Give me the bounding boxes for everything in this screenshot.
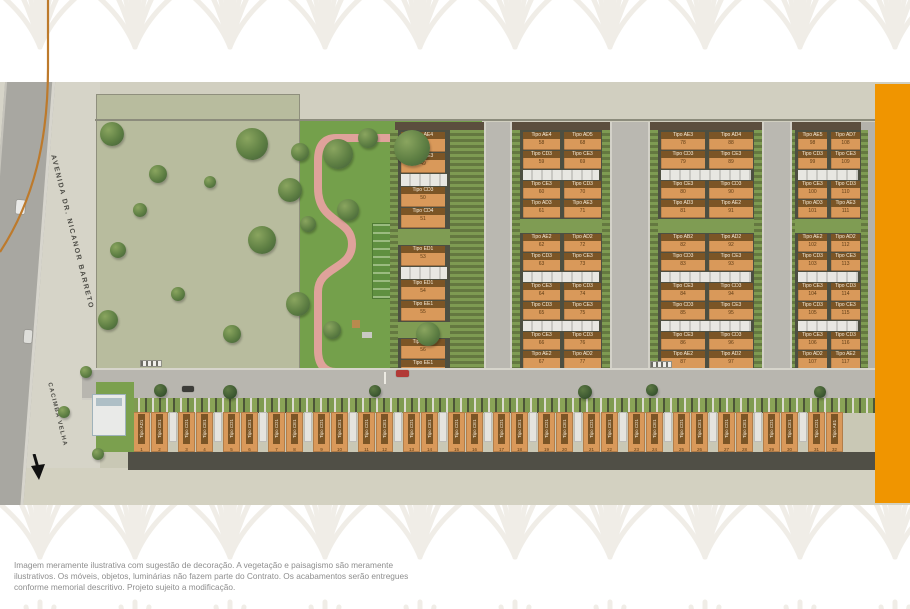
bottom-house: Tipo CD129 [763, 412, 780, 452]
bottom-house-label: Tipo CE1 [516, 414, 523, 444]
unit-lot-number: 69 [564, 158, 601, 167]
bottom-house-number: 7 [268, 447, 285, 452]
house-unit: Tipo CE366 [523, 332, 560, 350]
house-unit: Tipo CE3106 [798, 332, 827, 350]
unit-lot-number: 83 [661, 260, 705, 269]
unit-type-label: Tipo CE3 [798, 283, 827, 290]
unit-type-label: Tipo CD3 [661, 302, 705, 309]
bottom-house-number: 12 [376, 447, 393, 452]
tree [369, 385, 381, 397]
house-unit: Tipo CD374 [564, 283, 601, 301]
bottom-house-number: 22 [601, 447, 618, 452]
unit-lot-number: 101 [798, 207, 827, 216]
bottom-house-number: 8 [286, 447, 303, 452]
bottom-house: Tipo AE132 [826, 412, 843, 452]
garage-band [798, 272, 858, 282]
bottom-house-label: Tipo CD1 [453, 414, 460, 444]
garage-band [401, 267, 447, 279]
house-unit: Tipo CE3104 [798, 283, 827, 301]
unit-lot-number: 103 [798, 260, 827, 269]
unit-type-label: Tipo CE3 [523, 181, 560, 188]
unit-type-label: Tipo CE3 [831, 151, 860, 158]
bottom-house-number: 28 [736, 447, 753, 452]
unit-lot-number: 102 [798, 241, 827, 250]
unit-type-label: Tipo AE3 [564, 200, 601, 207]
driveway-strip [133, 398, 877, 413]
bottom-house-label: Tipo CE1 [336, 414, 343, 444]
tree [337, 199, 359, 221]
house-unit: Tipo CD399 [798, 151, 827, 169]
house-unit: Tipo CD350 [401, 187, 445, 207]
unit-type-label: Tipo CE3 [709, 151, 753, 158]
cross-lawn [398, 229, 450, 245]
tree [646, 384, 658, 396]
bottom-house-label: Tipo CE1 [651, 414, 658, 444]
unit-type-label: Tipo CD3 [709, 283, 753, 290]
unit-type-label: Tipo AB2 [661, 234, 705, 241]
house-unit: Tipo CD3110 [831, 181, 860, 199]
unit-lot-number: 93 [709, 260, 753, 269]
bottom-house-label: Tipo CD1 [678, 414, 685, 444]
unit-lot-number: 54 [401, 287, 445, 296]
cross-lawn [658, 219, 754, 233]
bottom-house: Tipo CD117 [493, 412, 510, 452]
unit-type-label: Tipo CE3 [798, 181, 827, 188]
unit-type-label: Tipo CE3 [831, 302, 860, 309]
unit-lot-number: 62 [523, 241, 560, 250]
unit-lot-number: 111 [831, 207, 860, 216]
bottom-house-number: 20 [556, 447, 573, 452]
unit-lot-number: 94 [709, 290, 753, 299]
tree [394, 130, 430, 166]
house-unit: Tipo AD2112 [831, 234, 860, 252]
bottom-house: Tipo CD123 [628, 412, 645, 452]
bottom-house-number: 19 [538, 447, 555, 452]
lane-marking [384, 372, 386, 384]
unit-type-label: Tipo CD3 [798, 302, 827, 309]
house-unit: Tipo AD7108 [831, 132, 860, 150]
bottom-house-number: 10 [331, 447, 348, 452]
bottom-house: Tipo CD119 [538, 412, 555, 452]
unit-lot-number: 109 [831, 158, 860, 167]
bottom-house-label: Tipo CE1 [696, 414, 703, 444]
cluster-ground: Tipo AE458Tipo AD568Tipo CD359Tipo CE369… [520, 130, 602, 372]
bottom-house-label: Tipo CE1 [561, 414, 568, 444]
vertical-street-1 [484, 122, 512, 370]
garage-band [661, 170, 751, 180]
unit-type-label: Tipo AE2 [523, 234, 560, 241]
unit-type-label: Tipo CD3 [798, 151, 827, 158]
unit-type-label: Tipo AE3 [831, 200, 860, 207]
house-unit: Tipo ED154 [401, 280, 445, 300]
tree [323, 139, 353, 169]
white-car [24, 330, 33, 344]
bottom-house-label: Tipo CE1 [741, 414, 748, 444]
house-unit: Tipo CE393 [709, 253, 753, 271]
bottom-house: Tipo CD127 [718, 412, 735, 452]
unit-type-label: Tipo CD3 [661, 151, 705, 158]
bottom-house-label: Tipo CD1 [768, 414, 775, 444]
house-unit: Tipo AE2117 [831, 351, 860, 369]
unit-type-label: Tipo CE3 [523, 332, 560, 339]
bottom-house-label: Tipo CE1 [156, 414, 163, 444]
unit-lot-number: 71 [564, 207, 601, 216]
bottom-house-number: 4 [196, 447, 213, 452]
house-unit: Tipo AE267 [523, 351, 560, 369]
bottom-house-number: 15 [448, 447, 465, 452]
unit-lot-number: 70 [564, 188, 601, 197]
unit-type-label: Tipo AD3 [661, 200, 705, 207]
tree [578, 385, 592, 399]
unit-type-label: Tipo CD3 [831, 283, 860, 290]
tree [300, 216, 316, 232]
bottom-garage [709, 412, 717, 442]
bottom-house-label: Tipo CE1 [381, 414, 388, 444]
bottom-house: Tipo CE16 [241, 412, 258, 452]
unit-lot-number: 82 [661, 241, 705, 250]
unit-lot-number: 67 [523, 358, 560, 367]
bottom-house-number: 11 [358, 447, 375, 452]
bottom-house-label: Tipo CE1 [471, 414, 478, 444]
unit-type-label: Tipo AD3 [798, 200, 827, 207]
bottom-house: Tipo CD115 [448, 412, 465, 452]
bottom-house-number: 16 [466, 447, 483, 452]
unit-type-label: Tipo CD4 [401, 208, 445, 215]
bottom-house-number: 30 [781, 447, 798, 452]
unit-type-label: Tipo AE2 [798, 234, 827, 241]
tree [154, 384, 167, 397]
bottom-garage [754, 412, 762, 442]
bottom-house-number: 9 [313, 447, 330, 452]
cluster-b: Tipo AE458Tipo AD568Tipo CD359Tipo CE369… [512, 130, 610, 372]
unit-type-label: Tipo CD3 [564, 283, 601, 290]
unit-lot-number: 116 [831, 339, 860, 348]
unit-type-label: Tipo CE3 [564, 302, 601, 309]
unit-lot-number: 78 [661, 139, 705, 148]
cluster-c: Tipo AE378Tipo AD488Tipo CD379Tipo CE389… [650, 130, 762, 372]
bottom-house-label: Tipo CE1 [606, 414, 613, 444]
tree [358, 128, 378, 148]
unit-lot-number: 73 [564, 260, 601, 269]
unit-lot-number: 92 [709, 241, 753, 250]
unit-lot-number: 61 [523, 207, 560, 216]
vertical-street-3 [762, 122, 792, 370]
house-unit: Tipo AD2107 [798, 351, 827, 369]
unit-type-label: Tipo CD3 [798, 253, 827, 260]
bottom-house-number: 29 [763, 447, 780, 452]
unit-lot-number: 59 [523, 158, 560, 167]
house-unit: Tipo AD381 [661, 200, 705, 218]
unit-type-label: Tipo CD3 [831, 181, 860, 188]
house-unit: Tipo AE598 [798, 132, 827, 150]
unit-type-label: Tipo AD2 [798, 351, 827, 358]
unit-lot-number: 76 [564, 339, 601, 348]
bottom-house: Tipo CE128 [736, 412, 753, 452]
bottom-garage [799, 412, 807, 442]
terrain-bottom [0, 468, 910, 505]
bottom-house-number: 26 [691, 447, 708, 452]
house-unit: Tipo CD396 [709, 332, 753, 350]
playground-item [362, 332, 372, 338]
unit-type-label: Tipo CD3 [401, 187, 445, 194]
house-unit: Tipo CD363 [523, 253, 560, 271]
bottom-house-label: Tipo CD1 [228, 414, 235, 444]
unit-type-label: Tipo CE3 [798, 332, 827, 339]
unit-lot-number: 64 [523, 290, 560, 299]
unit-lot-number: 79 [661, 158, 705, 167]
bottom-house-label: Tipo CD1 [723, 414, 730, 444]
tree [223, 385, 237, 399]
bottom-house-number: 1 [133, 447, 150, 452]
house-unit: Tipo AD292 [709, 234, 753, 252]
bottom-house: Tipo CE124 [646, 412, 663, 452]
unit-lot-number: 96 [709, 339, 753, 348]
unit-lot-number: 77 [564, 358, 601, 367]
unit-lot-number: 89 [709, 158, 753, 167]
direction-arrow-icon [28, 454, 50, 486]
unit-type-label: Tipo CE3 [709, 253, 753, 260]
house-unit: Tipo AE262 [523, 234, 560, 252]
house-unit: Tipo CD390 [709, 181, 753, 199]
house-unit: Tipo CD379 [661, 151, 705, 169]
bottom-house-label: Tipo AD1 [138, 414, 145, 444]
red-car [396, 370, 409, 377]
unit-type-label: Tipo CE3 [564, 253, 601, 260]
garage-band [798, 321, 858, 331]
unit-type-label: Tipo CD3 [564, 181, 601, 188]
bottom-house: Tipo CE118 [511, 412, 528, 452]
dark-car [182, 386, 194, 392]
house-unit: Tipo CE3113 [831, 253, 860, 271]
unit-lot-number: 114 [831, 290, 860, 299]
disclaimer-text: Imagem meramente ilustrativa com sugestã… [14, 560, 574, 592]
bottom-house-number: 31 [808, 447, 825, 452]
bottom-house: Tipo CD15 [223, 412, 240, 452]
unit-type-label: Tipo AE3 [661, 132, 705, 139]
unit-lot-number: 99 [798, 158, 827, 167]
unit-type-label: Tipo CE3 [831, 253, 860, 260]
unit-lot-number: 80 [661, 188, 705, 197]
bottom-house: Tipo CD13 [178, 412, 195, 452]
bottom-house-number: 24 [646, 447, 663, 452]
playground-item [352, 320, 360, 328]
unit-lot-number: 86 [661, 339, 705, 348]
unit-type-label: Tipo AE2 [661, 351, 705, 358]
bottom-garage [484, 412, 492, 442]
house-unit: Tipo EE155 [401, 301, 445, 321]
unit-type-label: Tipo AD2 [709, 351, 753, 358]
bottom-house-number: 3 [178, 447, 195, 452]
unit-lot-number: 72 [564, 241, 601, 250]
garage-band [523, 272, 599, 282]
bottom-house-label: Tipo CE1 [786, 414, 793, 444]
bottom-house-label: Tipo CD1 [633, 414, 640, 444]
bottom-house-number: 23 [628, 447, 645, 452]
tree [223, 325, 241, 343]
bottom-house: Tipo CE14 [196, 412, 213, 452]
bottom-house-label: Tipo CD1 [498, 414, 505, 444]
bottom-garage [214, 412, 222, 442]
house-unit: Tipo CE364 [523, 283, 560, 301]
unit-lot-number: 66 [523, 339, 560, 348]
garage-band [523, 170, 599, 180]
entrance-sign [140, 360, 162, 367]
bottom-house-number: 18 [511, 447, 528, 452]
bottom-house: Tipo CE18 [286, 412, 303, 452]
house-unit: Tipo CD3116 [831, 332, 860, 350]
house-unit: Tipo CE3109 [831, 151, 860, 169]
bottom-garage [259, 412, 267, 442]
bottom-house-number: 2 [151, 447, 168, 452]
bottom-garage [394, 412, 402, 442]
bottom-garage [169, 412, 177, 442]
unit-lot-number: 88 [709, 139, 753, 148]
unit-type-label: Tipo AD4 [709, 132, 753, 139]
house-unit: Tipo AD488 [709, 132, 753, 150]
house-unit: Tipo CD359 [523, 151, 560, 169]
house-unit: Tipo CE389 [709, 151, 753, 169]
unit-type-label: Tipo CE3 [564, 151, 601, 158]
cross-lawn [795, 219, 861, 233]
garage-band [661, 321, 751, 331]
entrance-sign [650, 361, 672, 368]
garage-band [661, 272, 751, 282]
tree [92, 448, 104, 460]
bottom-house-label: Tipo CE1 [201, 414, 208, 444]
tree [58, 406, 70, 418]
unit-lot-number: 104 [798, 290, 827, 299]
bottom-house-label: Tipo CE1 [246, 414, 253, 444]
unit-type-label: Tipo CD3 [831, 332, 860, 339]
bottom-house-label: Tipo CD1 [813, 414, 820, 444]
house-unit: Tipo AE3111 [831, 200, 860, 218]
house-unit: Tipo CD383 [661, 253, 705, 271]
unit-lot-number: 108 [831, 139, 860, 148]
unit-lot-number: 110 [831, 188, 860, 197]
unit-lot-number: 51 [401, 215, 445, 224]
bottom-house-number: 32 [826, 447, 843, 452]
unit-type-label: Tipo AE2 [831, 351, 860, 358]
unit-type-label: Tipo AD2 [709, 234, 753, 241]
house-unit: Tipo CE369 [564, 151, 601, 169]
house-unit: Tipo CD451 [401, 208, 445, 228]
house-unit: Tipo CE384 [661, 283, 705, 301]
bottom-house: Tipo CE126 [691, 412, 708, 452]
unit-type-label: Tipo CE3 [523, 283, 560, 290]
bottom-house-label: Tipo CD1 [318, 414, 325, 444]
unit-type-label: Tipo CE3 [661, 332, 705, 339]
bottom-garage [349, 412, 357, 442]
vertical-street-2 [610, 122, 650, 370]
unit-lot-number: 81 [661, 207, 705, 216]
garage-band [798, 170, 858, 180]
unit-lot-number: 55 [401, 308, 445, 317]
house-unit: Tipo CD3114 [831, 283, 860, 301]
bottom-house: Tipo CE110 [331, 412, 348, 452]
house-unit: Tipo AD272 [564, 234, 601, 252]
house-unit: Tipo CE375 [564, 302, 601, 320]
unit-lot-number: 60 [523, 188, 560, 197]
disclaimer-line: conforme memorial descritivo. Projeto su… [14, 582, 574, 593]
bottom-house-label: Tipo CD1 [408, 414, 415, 444]
house-unit: Tipo CD376 [564, 332, 601, 350]
bottom-house-label: Tipo CE1 [426, 414, 433, 444]
house-unit: Tipo AD568 [564, 132, 601, 150]
bottom-house-number: 6 [241, 447, 258, 452]
unit-type-label: Tipo CE3 [661, 181, 705, 188]
bottom-house-label: Tipo CD1 [273, 414, 280, 444]
unit-lot-number: 63 [523, 260, 560, 269]
unit-lot-number: 90 [709, 188, 753, 197]
unit-type-label: Tipo CD3 [709, 181, 753, 188]
bottom-house: Tipo CE120 [556, 412, 573, 452]
bottom-garage [574, 412, 582, 442]
unit-lot-number: 50 [401, 194, 445, 203]
garage-band [401, 174, 447, 186]
bottom-house: Tipo CE122 [601, 412, 618, 452]
unit-type-label: Tipo CD3 [709, 332, 753, 339]
unit-lot-number: 65 [523, 309, 560, 318]
house-unit: Tipo AD3101 [798, 200, 827, 218]
bottom-garage [304, 412, 312, 442]
bottom-house: Tipo CD113 [403, 412, 420, 452]
unit-type-label: Tipo CE3 [709, 302, 753, 309]
bottom-house-number: 27 [718, 447, 735, 452]
bottom-house-label: Tipo AE1 [831, 414, 838, 444]
unit-type-label: Tipo AE2 [523, 351, 560, 358]
unit-type-label: Tipo ED1 [401, 246, 445, 253]
unit-lot-number: 91 [709, 207, 753, 216]
bottom-house-label: Tipo CE1 [291, 414, 298, 444]
bottom-house: Tipo CE116 [466, 412, 483, 452]
house-unit: Tipo AB282 [661, 234, 705, 252]
unit-type-label: Tipo AD2 [564, 234, 601, 241]
bottom-house: Tipo AD11 [133, 412, 150, 452]
unit-type-label: Tipo EE1 [401, 301, 445, 308]
main-street [82, 368, 877, 400]
bottom-house-label: Tipo CD1 [588, 414, 595, 444]
unit-lot-number: 56 [401, 346, 445, 355]
bottom-house-number: 21 [583, 447, 600, 452]
bottom-house-number: 17 [493, 447, 510, 452]
bottom-house-row: Tipo AD11Tipo CE12Tipo CD13Tipo CE14Tipo… [133, 412, 877, 454]
unit-lot-number: 74 [564, 290, 601, 299]
unit-lot-number: 95 [709, 309, 753, 318]
unit-lot-number: 98 [798, 139, 827, 148]
unit-lot-number: 97 [709, 358, 753, 367]
bottom-house: Tipo CD17 [268, 412, 285, 452]
unit-type-label: Tipo AD7 [831, 132, 860, 139]
unit-type-label: Tipo AE4 [523, 132, 560, 139]
house-unit: Tipo AD297 [709, 351, 753, 369]
disclaimer-line: Imagem meramente ilustrativa com sugestã… [14, 560, 574, 571]
house-unit: Tipo AE458 [523, 132, 560, 150]
bottom-house-label: Tipo CD1 [543, 414, 550, 444]
rear-alley-bottom [128, 452, 877, 470]
cluster-ground: Tipo AE378Tipo AD488Tipo CD379Tipo CE389… [658, 130, 754, 372]
bottom-house: Tipo CE130 [781, 412, 798, 452]
tree [323, 321, 341, 339]
unit-lot-number: 113 [831, 260, 860, 269]
garage-band [523, 321, 599, 331]
bottom-house: Tipo CD19 [313, 412, 330, 452]
unit-lot-number: 53 [401, 253, 445, 262]
unit-lot-number: 115 [831, 309, 860, 318]
cluster-a: Tipo AE448Tipo CE349Tipo CD350Tipo CD451… [390, 130, 484, 383]
bottom-house: Tipo CD131 [808, 412, 825, 452]
house-unit: Tipo CE360 [523, 181, 560, 199]
bottom-house-label: Tipo CD1 [183, 414, 190, 444]
